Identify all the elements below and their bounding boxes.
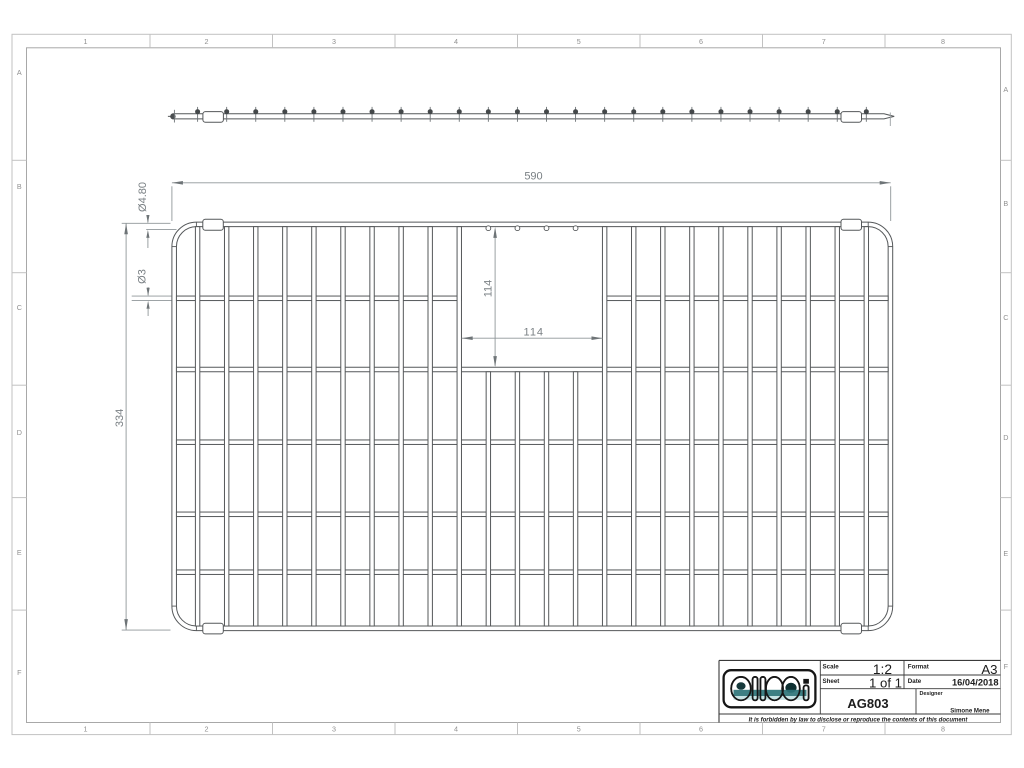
svg-text:334: 334 [114, 409, 126, 427]
svg-text:Ø4.80: Ø4.80 [137, 182, 149, 212]
svg-text:Sheet: Sheet [823, 678, 840, 685]
svg-text:4: 4 [454, 37, 458, 46]
svg-text:C: C [17, 303, 22, 312]
svg-text:7: 7 [822, 725, 826, 734]
svg-text:Designer: Designer [920, 691, 944, 697]
svg-text:Ø3: Ø3 [137, 269, 149, 284]
svg-text:E: E [1003, 549, 1008, 558]
svg-text:B: B [17, 182, 22, 191]
svg-text:D: D [1003, 433, 1008, 442]
svg-text:1: 1 [84, 37, 88, 46]
svg-text:AG803: AG803 [847, 696, 888, 711]
svg-text:Scale: Scale [823, 664, 840, 671]
svg-text:Format: Format [908, 664, 929, 671]
svg-text:2: 2 [205, 725, 209, 734]
svg-text:1: 1 [84, 725, 88, 734]
svg-text:D: D [17, 428, 22, 437]
svg-text:590: 590 [524, 170, 542, 182]
svg-text:8: 8 [941, 725, 945, 734]
svg-text:6: 6 [699, 37, 703, 46]
svg-text:F: F [17, 668, 22, 677]
svg-text:1 of 1: 1 of 1 [869, 675, 902, 690]
svg-text:B: B [1003, 199, 1008, 208]
svg-text:114: 114 [524, 326, 545, 338]
svg-text:3: 3 [332, 725, 336, 734]
svg-text:7: 7 [822, 37, 826, 46]
svg-text:Simone Mene: Simone Mene [950, 707, 990, 714]
svg-text:4: 4 [454, 725, 458, 734]
svg-text:5: 5 [577, 37, 581, 46]
svg-text:3: 3 [332, 37, 336, 46]
svg-text:6: 6 [699, 725, 703, 734]
svg-text:8: 8 [941, 37, 945, 46]
svg-text:It is forbidden by law to disc: It is forbidden by law to disclose or re… [749, 717, 969, 723]
svg-text:16/04/2018: 16/04/2018 [952, 678, 999, 688]
svg-text:A: A [1003, 85, 1008, 94]
svg-text:Date: Date [908, 678, 922, 685]
svg-text:C: C [1003, 313, 1008, 322]
svg-text:2: 2 [205, 37, 209, 46]
svg-text:A: A [17, 68, 22, 77]
svg-text:5: 5 [577, 725, 581, 734]
svg-text:114: 114 [482, 280, 494, 298]
svg-text:A3: A3 [981, 662, 997, 677]
svg-text:E: E [17, 548, 22, 557]
svg-text:F: F [1004, 662, 1009, 671]
